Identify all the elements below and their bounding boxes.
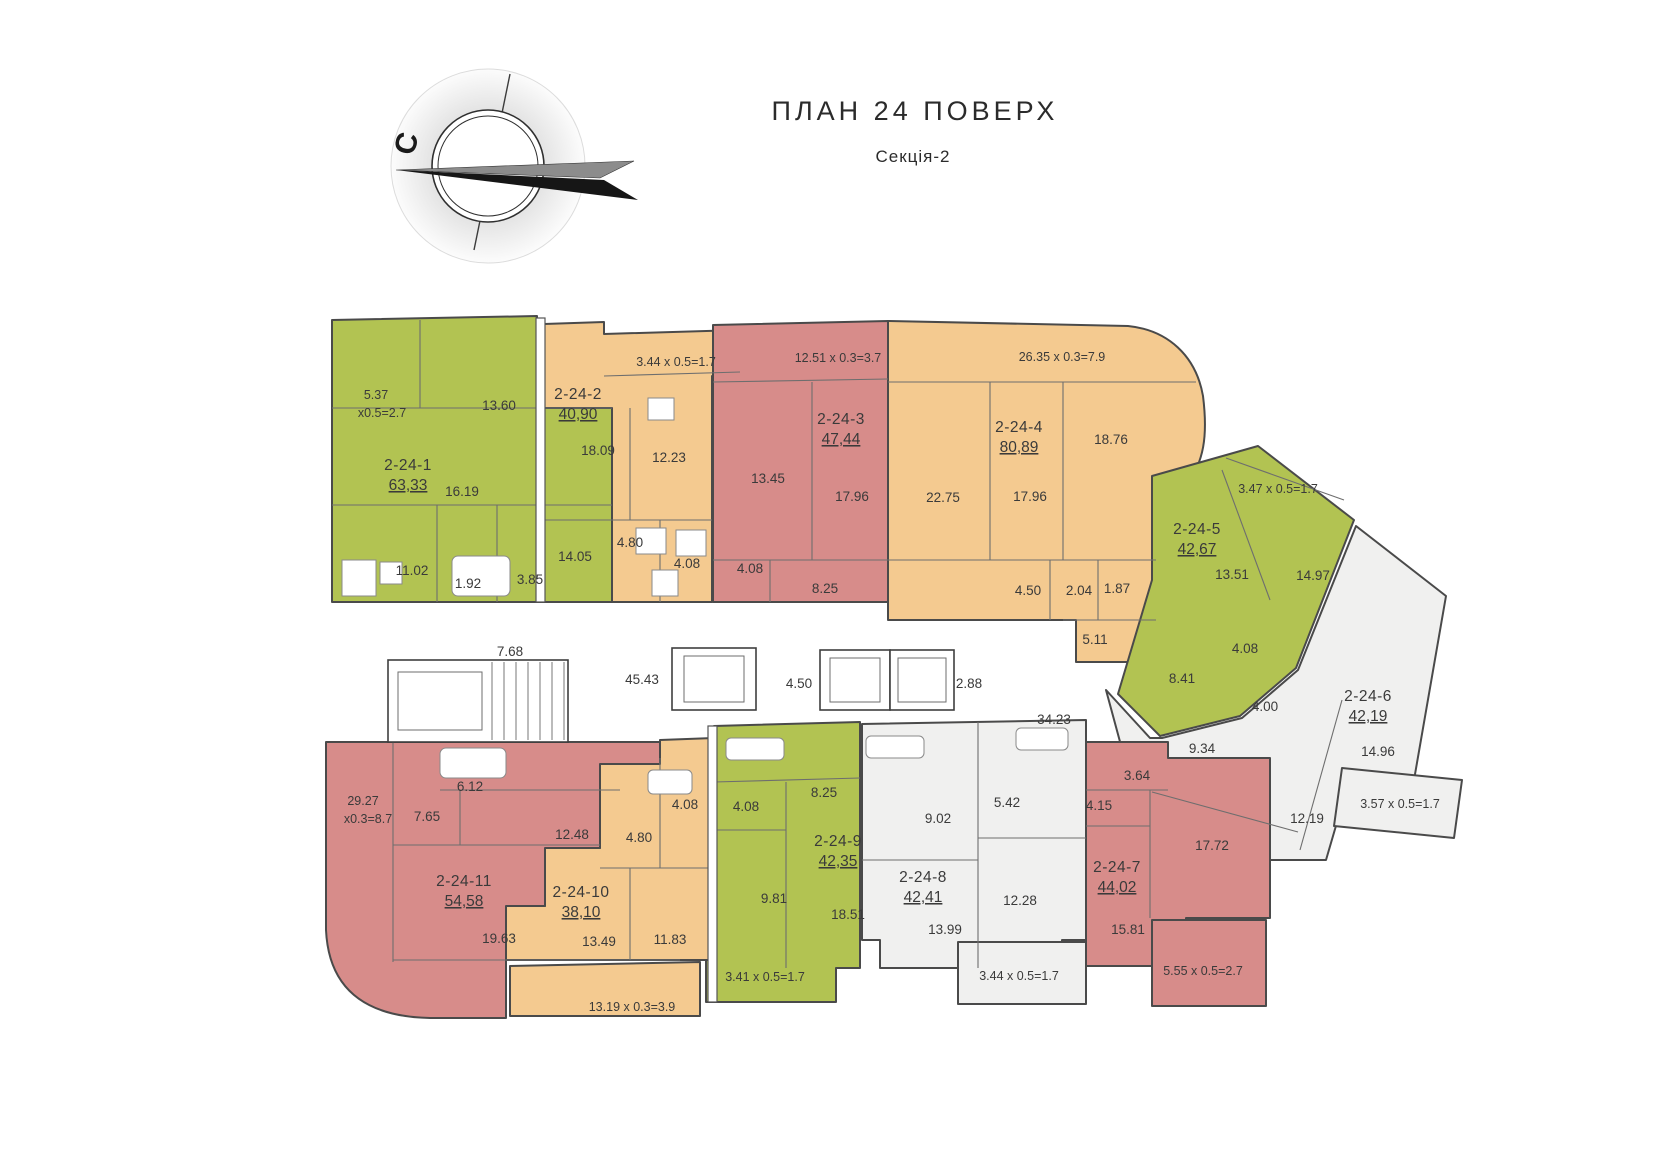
room-area: 12.28 bbox=[1003, 893, 1037, 908]
room-area: 17.96 bbox=[835, 489, 869, 504]
elevator-core bbox=[672, 648, 954, 710]
room-area: 13.60 bbox=[482, 398, 516, 413]
corridor-area: 45.43 bbox=[625, 672, 659, 687]
room-area: 13.51 bbox=[1215, 567, 1249, 582]
room-area: 1.87 bbox=[1104, 581, 1130, 596]
apartment-total-area: 42,41 bbox=[904, 889, 943, 906]
floor-plan-page: ПЛАН 24 ПОВЕРХ Секція-2 С bbox=[0, 0, 1655, 1170]
apartment-id: 2-24-9 bbox=[814, 833, 862, 850]
room-area: 8.41 bbox=[1169, 671, 1195, 686]
room-area: 18.76 bbox=[1094, 432, 1128, 447]
room-area: 3.64 bbox=[1124, 768, 1151, 783]
room-area: 17.96 bbox=[1013, 489, 1047, 504]
apartment-total-area: 40,90 bbox=[559, 406, 598, 423]
balcony-area: 13.19 x 0.3=3.9 bbox=[589, 1000, 676, 1014]
apartment-total-area: 80,89 bbox=[1000, 439, 1039, 456]
room-area: 19.63 bbox=[482, 931, 516, 946]
room-area: 4.50 bbox=[1015, 583, 1041, 598]
apartment-total-area: 42,19 bbox=[1349, 708, 1388, 725]
apartment-id: 2-24-5 bbox=[1173, 521, 1221, 538]
room-area: 11.02 bbox=[396, 563, 429, 578]
room-area: 12.23 bbox=[652, 450, 686, 465]
balcony-area: x0.3=8.7 bbox=[344, 812, 392, 826]
room-area: 4.80 bbox=[626, 830, 652, 845]
apartment-id: 2-24-6 bbox=[1344, 688, 1392, 705]
room-area: 22.75 bbox=[926, 490, 960, 505]
room-area: 2.04 bbox=[1066, 583, 1093, 598]
room-area: 9.81 bbox=[761, 891, 787, 906]
balcony-area: 5.37 bbox=[364, 388, 388, 402]
room-area: 4.15 bbox=[1086, 798, 1112, 813]
balcony-area: 3.47 x 0.5=1.7 bbox=[1238, 482, 1318, 496]
apartment-total-area: 44,02 bbox=[1098, 879, 1137, 896]
page-subtitle: Секція-2 bbox=[875, 147, 950, 166]
wall-shaft bbox=[536, 318, 545, 602]
room-area: 3.85 bbox=[517, 572, 543, 587]
apartment-id: 2-24-2 bbox=[554, 386, 602, 403]
floor-plan-drawing: ПЛАН 24 ПОВЕРХ Секція-2 С bbox=[0, 0, 1655, 1170]
apartment-total-area: 42,67 bbox=[1178, 541, 1217, 558]
room-area: 15.81 bbox=[1111, 922, 1145, 937]
stair-core bbox=[388, 660, 568, 742]
room-area: 4.00 bbox=[1252, 699, 1278, 714]
room-area: 14.96 bbox=[1361, 744, 1395, 759]
balcony-area: 26.35 x 0.3=7.9 bbox=[1019, 350, 1106, 364]
balcony-area: 5.55 x 0.5=2.7 bbox=[1163, 964, 1243, 978]
wall-shaft bbox=[708, 726, 717, 1002]
room-area: 9.34 bbox=[1189, 741, 1216, 756]
room-area: 1.92 bbox=[455, 576, 481, 591]
balcony-area: 3.44 x 0.5=1.7 bbox=[979, 969, 1059, 983]
lift-shaft-area: 2.88 bbox=[956, 676, 982, 691]
apartment-total-area: 42,35 bbox=[819, 853, 858, 870]
room-area: 14.97 bbox=[1296, 568, 1330, 583]
page-title: ПЛАН 24 ПОВЕРХ bbox=[772, 96, 1059, 126]
apartment-id: 2-24-7 bbox=[1093, 859, 1141, 876]
balcony-area: 12.51 x 0.3=3.7 bbox=[795, 351, 882, 365]
room-area: 16.19 bbox=[445, 484, 479, 499]
room-area: 11.83 bbox=[654, 932, 687, 947]
apartment-total-area: 54,58 bbox=[445, 893, 484, 910]
balcony-area: x0.5=2.7 bbox=[358, 406, 406, 420]
corridor-area: 7.68 bbox=[497, 644, 523, 659]
room-area: 12.48 bbox=[555, 827, 589, 842]
room-area: 7.65 bbox=[414, 809, 440, 824]
room-area: 4.80 bbox=[617, 535, 643, 550]
room-area: 13.99 bbox=[928, 922, 962, 937]
apartment-id: 2-24-11 bbox=[436, 873, 492, 890]
common-area-labels: 7.68 45.43 4.50 2.88 34.23 bbox=[497, 644, 1071, 727]
apartment-id: 2-24-3 bbox=[817, 411, 865, 428]
room-area: 17.72 bbox=[1195, 838, 1229, 853]
room-area: 18.09 bbox=[581, 443, 615, 458]
balcony-area: 29.27 bbox=[347, 794, 378, 808]
room-area: 13.45 bbox=[751, 471, 785, 486]
room-area: 5.42 bbox=[994, 795, 1020, 810]
room-area: 8.25 bbox=[811, 785, 837, 800]
room-area: 4.08 bbox=[672, 797, 698, 812]
balcony-area: 3.44 x 0.5=1.7 bbox=[636, 355, 716, 369]
room-area: 12.19 bbox=[1290, 811, 1324, 826]
room-area: 5.11 bbox=[1082, 632, 1107, 647]
room-area: 4.08 bbox=[1232, 641, 1258, 656]
room-area: 14.05 bbox=[558, 549, 592, 564]
apartment-id: 2-24-8 bbox=[899, 869, 947, 886]
room-area: 4.08 bbox=[737, 561, 763, 576]
apartment-total-area: 47,44 bbox=[822, 431, 861, 448]
room-area: 9.02 bbox=[925, 811, 951, 826]
lift-lobby-area: 4.50 bbox=[786, 676, 812, 691]
room-area: 8.25 bbox=[812, 581, 838, 596]
balcony-area: 3.57 x 0.5=1.7 bbox=[1360, 797, 1440, 811]
room-area: 4.08 bbox=[733, 799, 759, 814]
apartment-total-area: 63,33 bbox=[389, 477, 428, 494]
apartment-2-24-7-balcony bbox=[1152, 920, 1266, 1006]
apartment-id: 2-24-10 bbox=[553, 884, 610, 901]
balcony-area: 3.41 x 0.5=1.7 bbox=[725, 970, 805, 984]
room-area: 13.49 bbox=[582, 934, 616, 949]
apartment-id: 2-24-1 bbox=[384, 457, 432, 474]
room-area: 4.08 bbox=[674, 556, 700, 571]
corridor-area: 34.23 bbox=[1037, 712, 1071, 727]
compass-rose: С bbox=[388, 69, 638, 263]
apartment-id: 2-24-4 bbox=[995, 419, 1043, 436]
apartment-total-area: 38,10 bbox=[562, 904, 601, 921]
room-area: 6.12 bbox=[457, 779, 483, 794]
room-area: 18.51 bbox=[831, 907, 865, 922]
